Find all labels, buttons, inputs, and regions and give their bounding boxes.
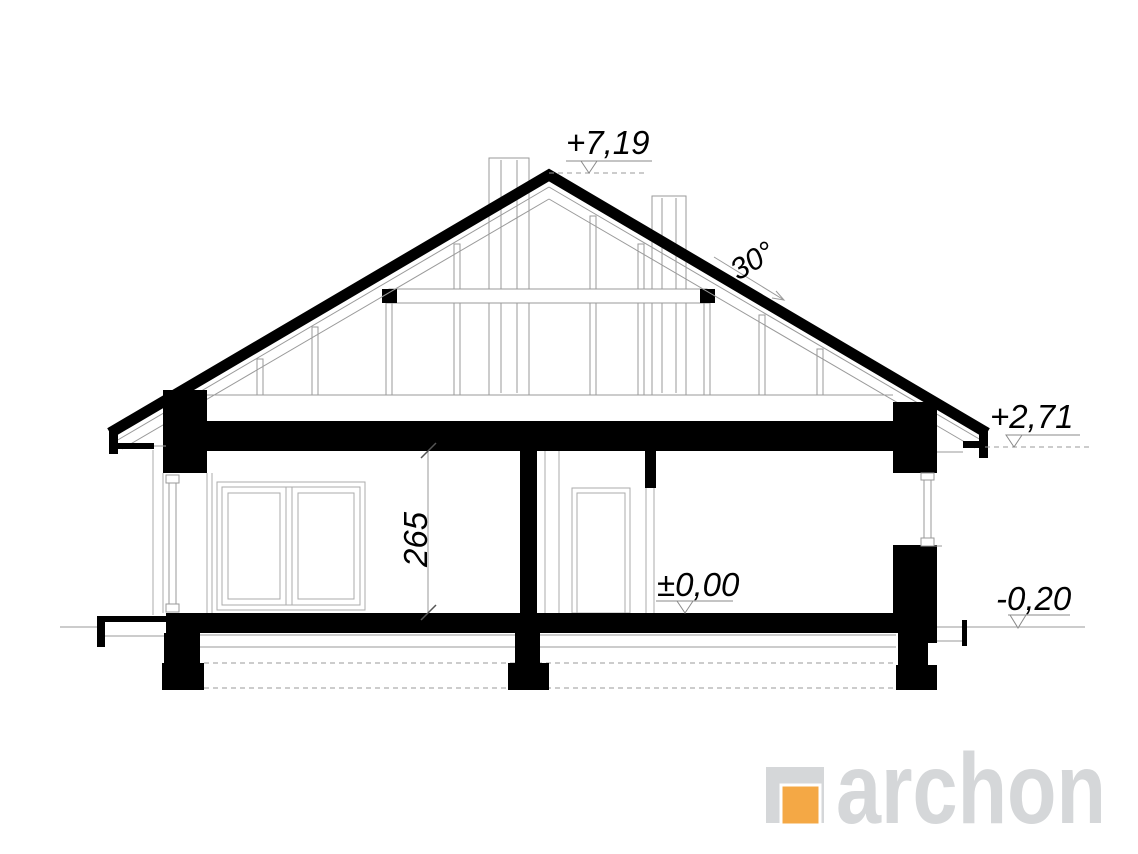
soffit-right [963, 441, 988, 448]
window-pane [298, 493, 354, 599]
window-pane [228, 493, 280, 599]
ridge-level-label: +7,19 [566, 124, 650, 161]
roof-covering [110, 175, 987, 433]
level-marker-ground: -0,20 [996, 580, 1072, 628]
ground-tick [962, 620, 967, 646]
fascia-left [109, 427, 118, 454]
left-glass-door-section [166, 475, 179, 612]
right-foundation-wall [898, 633, 928, 667]
left-foundation-wall [164, 633, 200, 663]
right-wall-lower-section [893, 545, 937, 613]
architectural-section-drawing: +7,19 +2,71 ±0,00 -0,20 30° 265 archon [0, 0, 1138, 854]
door-inner-frame [577, 493, 625, 613]
terrace-slab [97, 616, 167, 622]
right-footing [896, 665, 937, 690]
roof-angle-arrowhead [772, 291, 784, 300]
interior-height-dimension: 265 [397, 443, 436, 620]
centre-wall-section [520, 451, 537, 613]
frame-block [921, 538, 934, 546]
attic-post [590, 216, 596, 395]
window-elevation [217, 482, 365, 610]
window-inner-frame [222, 487, 360, 605]
attic-post [386, 303, 392, 395]
floor-and-foundations [60, 613, 1085, 690]
frame-block [921, 473, 934, 480]
door-outer-frame [572, 488, 630, 613]
brand-logo: archon [766, 733, 1106, 845]
right-wall-head [893, 402, 937, 473]
right-wall [893, 473, 942, 613]
centre-foundation-wall [515, 633, 540, 663]
collar-beam [389, 289, 707, 303]
centre-footing [508, 663, 549, 690]
window-outer-frame [217, 482, 365, 610]
terrace-edge [97, 616, 105, 647]
attic-floor-band [207, 395, 893, 421]
floor-level-label: ±0,00 [657, 566, 740, 603]
attic-post [257, 359, 263, 395]
frame-block [166, 604, 179, 612]
logo-wordmark: archon [836, 733, 1106, 845]
door-elevation [572, 488, 630, 613]
soffit-left [116, 443, 154, 449]
logo-orange-square [781, 785, 820, 825]
interior-height-label: 265 [397, 511, 434, 568]
ground-floor [153, 450, 942, 615]
level-marker-eaves: +2,71 [985, 398, 1092, 447]
level-marker-triangle [581, 161, 597, 173]
attic-post [638, 244, 644, 395]
level-marker-floor: ±0,00 [656, 566, 740, 613]
floor-slab [166, 613, 937, 633]
frame-block [166, 475, 179, 483]
left-footing [162, 663, 204, 690]
partition-lintel-stub [645, 451, 656, 488]
section-svg: +7,19 +2,71 ±0,00 -0,20 30° 265 archon [0, 0, 1138, 854]
attic-post [454, 244, 460, 395]
eaves-level-label: +2,71 [990, 398, 1074, 435]
ground-level-label: -0,20 [996, 580, 1072, 617]
level-marker-triangle [1006, 435, 1022, 447]
right-plinth-ledge [928, 613, 937, 643]
ceiling-slab [163, 421, 937, 451]
attic-post [759, 315, 765, 395]
level-marker-ridge: +7,19 [549, 124, 652, 173]
attic-post [704, 303, 710, 395]
attic-framing [207, 158, 893, 421]
